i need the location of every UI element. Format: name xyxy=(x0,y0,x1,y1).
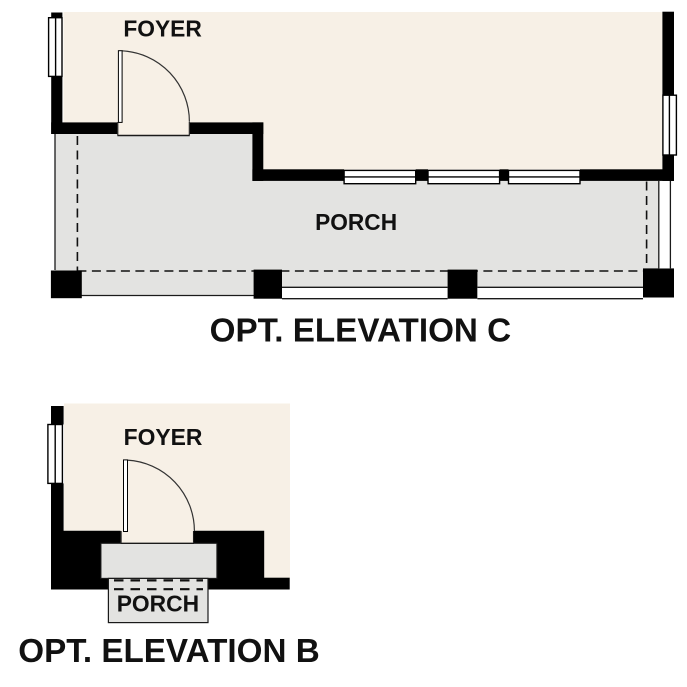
svg-text:PORCH: PORCH xyxy=(117,590,199,616)
svg-text:PORCH: PORCH xyxy=(315,209,397,235)
svg-text:OPT. ELEVATION C: OPT. ELEVATION C xyxy=(210,313,512,350)
svg-text:OPT. ELEVATION B: OPT. ELEVATION B xyxy=(18,633,319,670)
svg-text:FOYER: FOYER xyxy=(123,16,202,42)
svg-text:FOYER: FOYER xyxy=(124,424,203,450)
